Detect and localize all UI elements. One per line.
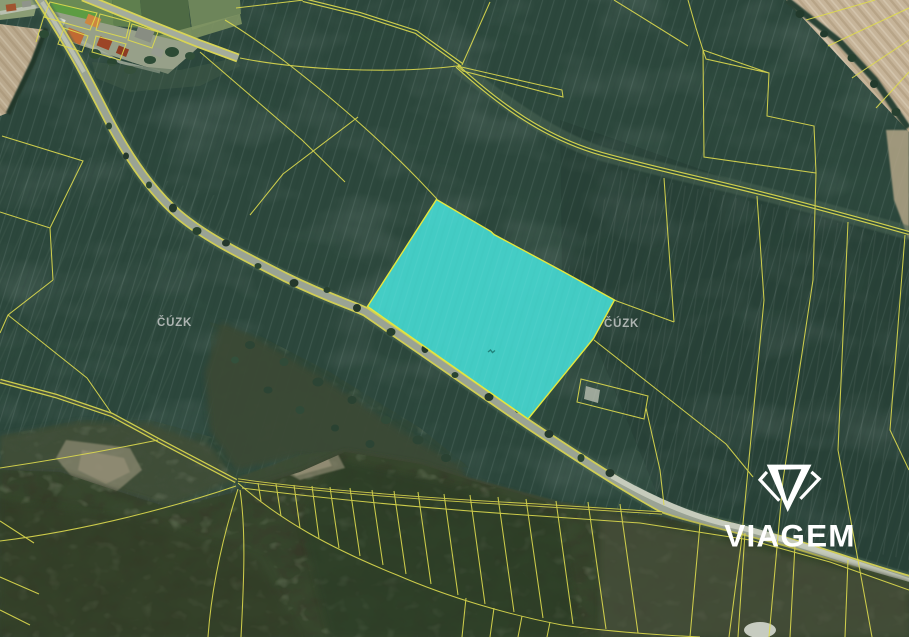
svg-text:ČÚZK: ČÚZK [604,317,639,330]
svg-text:VIAGEM: VIAGEM [724,518,855,554]
svg-text:ČÚZK: ČÚZK [157,316,192,329]
